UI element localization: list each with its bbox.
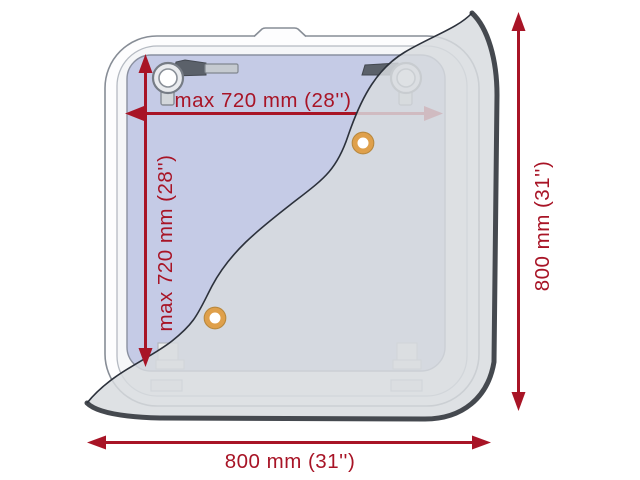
label-overall-width: 800 mm (31''): [225, 450, 356, 473]
arrowhead-up: [512, 12, 526, 31]
dim-overall-height-arrow: [512, 12, 526, 411]
arrowhead-right: [472, 436, 491, 450]
arrowhead-down: [512, 392, 526, 411]
dim-overall-width-arrow: [87, 436, 491, 450]
grommet-bottom: [204, 307, 226, 329]
grommet-top: [352, 132, 374, 154]
label-overall-height: 800 mm (31''): [531, 161, 554, 292]
arrowhead-left: [87, 436, 106, 450]
dimension-diagram: max 720 mm (28'') max 720 mm (28'') 800 …: [0, 0, 640, 480]
latch-knob-center: [159, 69, 177, 87]
grommet-ring: [355, 135, 371, 151]
label-opening-height: max 720 mm (28''): [154, 155, 177, 332]
diagram-canvas: max 720 mm (28'') max 720 mm (28'') 800 …: [0, 0, 640, 480]
latch-lever-tip: [205, 64, 238, 73]
label-opening-width: max 720 mm (28''): [175, 89, 352, 112]
grommet-ring: [207, 310, 223, 326]
